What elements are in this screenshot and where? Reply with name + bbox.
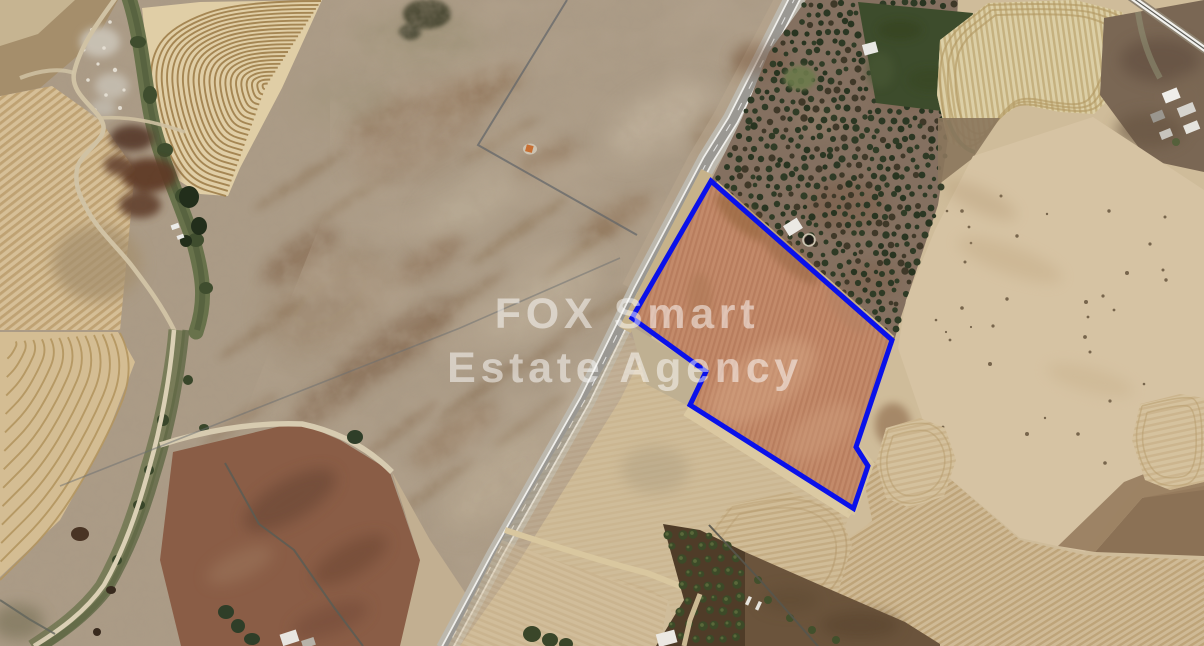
- svg-text:Estate Agency: Estate Agency: [447, 344, 803, 392]
- svg-text:FOX Smart: FOX Smart: [495, 290, 760, 338]
